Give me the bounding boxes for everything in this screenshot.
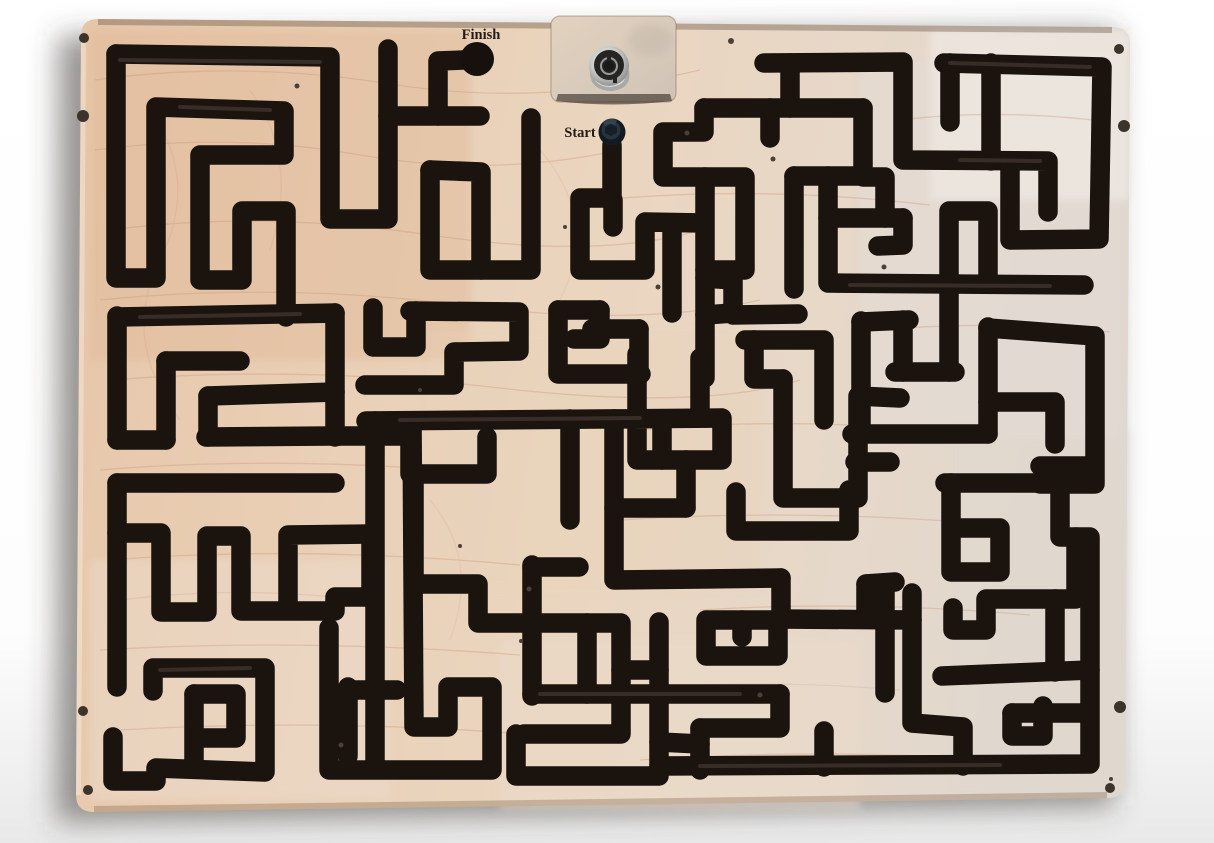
svg-text:Start: Start [564,125,596,141]
svg-text:Finish: Finish [462,27,501,43]
